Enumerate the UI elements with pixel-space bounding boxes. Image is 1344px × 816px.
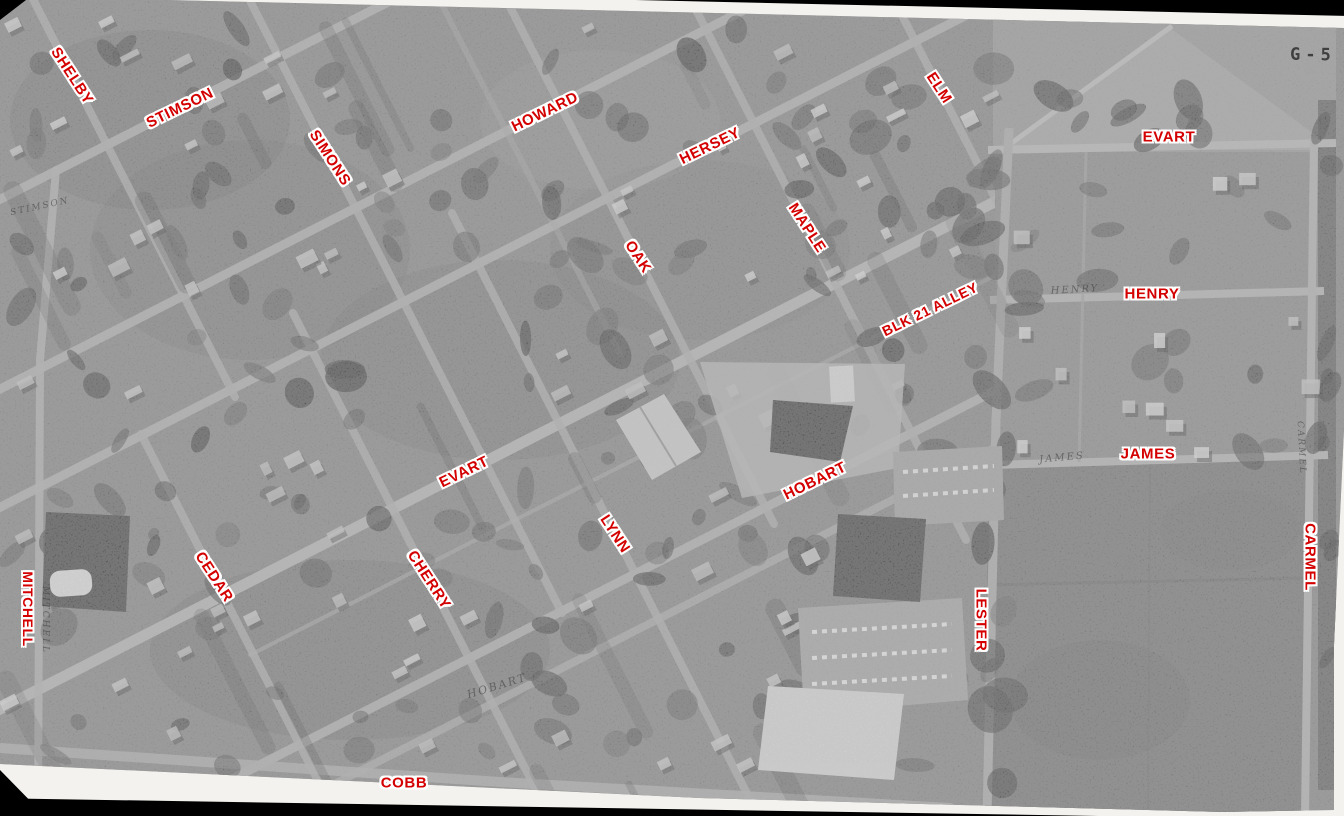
photo-content bbox=[0, 0, 1344, 816]
aerial-photo bbox=[0, 0, 1344, 816]
sheet-reference: G-5 bbox=[1290, 45, 1336, 66]
aerial-photo-sheet: STIMSONMITCHELLHOBARTHENRYJAMESCARMEL SH… bbox=[0, 0, 1344, 816]
